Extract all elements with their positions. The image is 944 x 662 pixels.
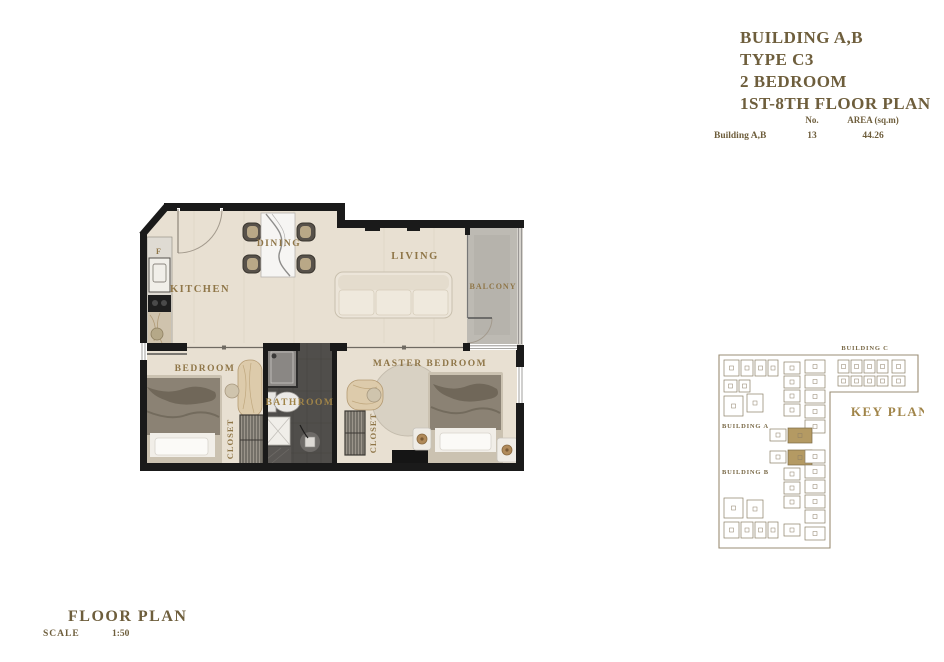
floor-plan: KITCHEN DINING LIVING BALCONY BEDROOM MA… [134, 195, 530, 477]
dining-chair [297, 255, 315, 273]
living-label: LIVING [391, 251, 439, 262]
key-plan-units [724, 360, 905, 540]
kitchen-label: KITCHEN [170, 284, 230, 295]
bedroom-furniture [143, 360, 263, 468]
key-plan: BUILDING C KEY PLAN BUILDING A BUILDING … [712, 338, 924, 556]
building-c-label: BUILDING C [841, 345, 888, 352]
building-a-label: BUILDING A [722, 423, 769, 430]
key-plan-title: KEY PLAN [851, 404, 924, 419]
bed [143, 375, 222, 468]
nightstand [413, 428, 431, 450]
highlighted-unit-a [788, 428, 812, 443]
building-b-label: BUILDING B [722, 469, 769, 476]
footer-title: FLOOR PLAN [68, 608, 187, 626]
title-block: BUILDING A,B TYPE C3 2 BEDROOM 1ST-8TH F… [740, 27, 931, 115]
bathroom-sink [266, 417, 290, 445]
bedroom-label: BEDROOM [175, 364, 236, 374]
title-line-bedrooms: 2 BEDROOM [740, 71, 931, 93]
closet-master-label: CLOSET [368, 413, 378, 454]
spec-table: No. AREA (sq.m) Building A,B 13 44.26 [714, 112, 914, 141]
spec-header-area: AREA (sq.m) [832, 112, 914, 125]
footer-scale-value: 1:50 [112, 629, 129, 639]
master-bed [428, 372, 503, 467]
spec-header-no: No. [792, 112, 832, 125]
page: BUILDING A,B TYPE C3 2 BEDROOM 1ST-8TH F… [0, 0, 944, 662]
wardrobe [240, 415, 263, 465]
title-line-building: BUILDING A,B [740, 27, 931, 49]
dining-label: DINING [257, 239, 301, 249]
spec-row-name: Building A,B [714, 125, 792, 141]
footer-scale-label: SCALE [43, 629, 80, 639]
title-line-type: TYPE C3 [740, 49, 931, 71]
master-bedroom-label: MASTER BEDROOM [373, 359, 487, 369]
bathroom-label: BATHROOM [266, 398, 335, 408]
closet-bedroom-label: CLOSET [225, 419, 235, 460]
spec-header-empty [714, 112, 792, 125]
spec-row-area: 44.26 [832, 125, 914, 141]
dining-chair [243, 255, 261, 273]
sofa [335, 272, 452, 318]
fridge-label: F [156, 247, 162, 256]
shower [267, 348, 297, 387]
balcony-label: BALCONY [469, 282, 516, 291]
nightstand [497, 438, 518, 462]
spec-row-no: 13 [792, 125, 832, 141]
